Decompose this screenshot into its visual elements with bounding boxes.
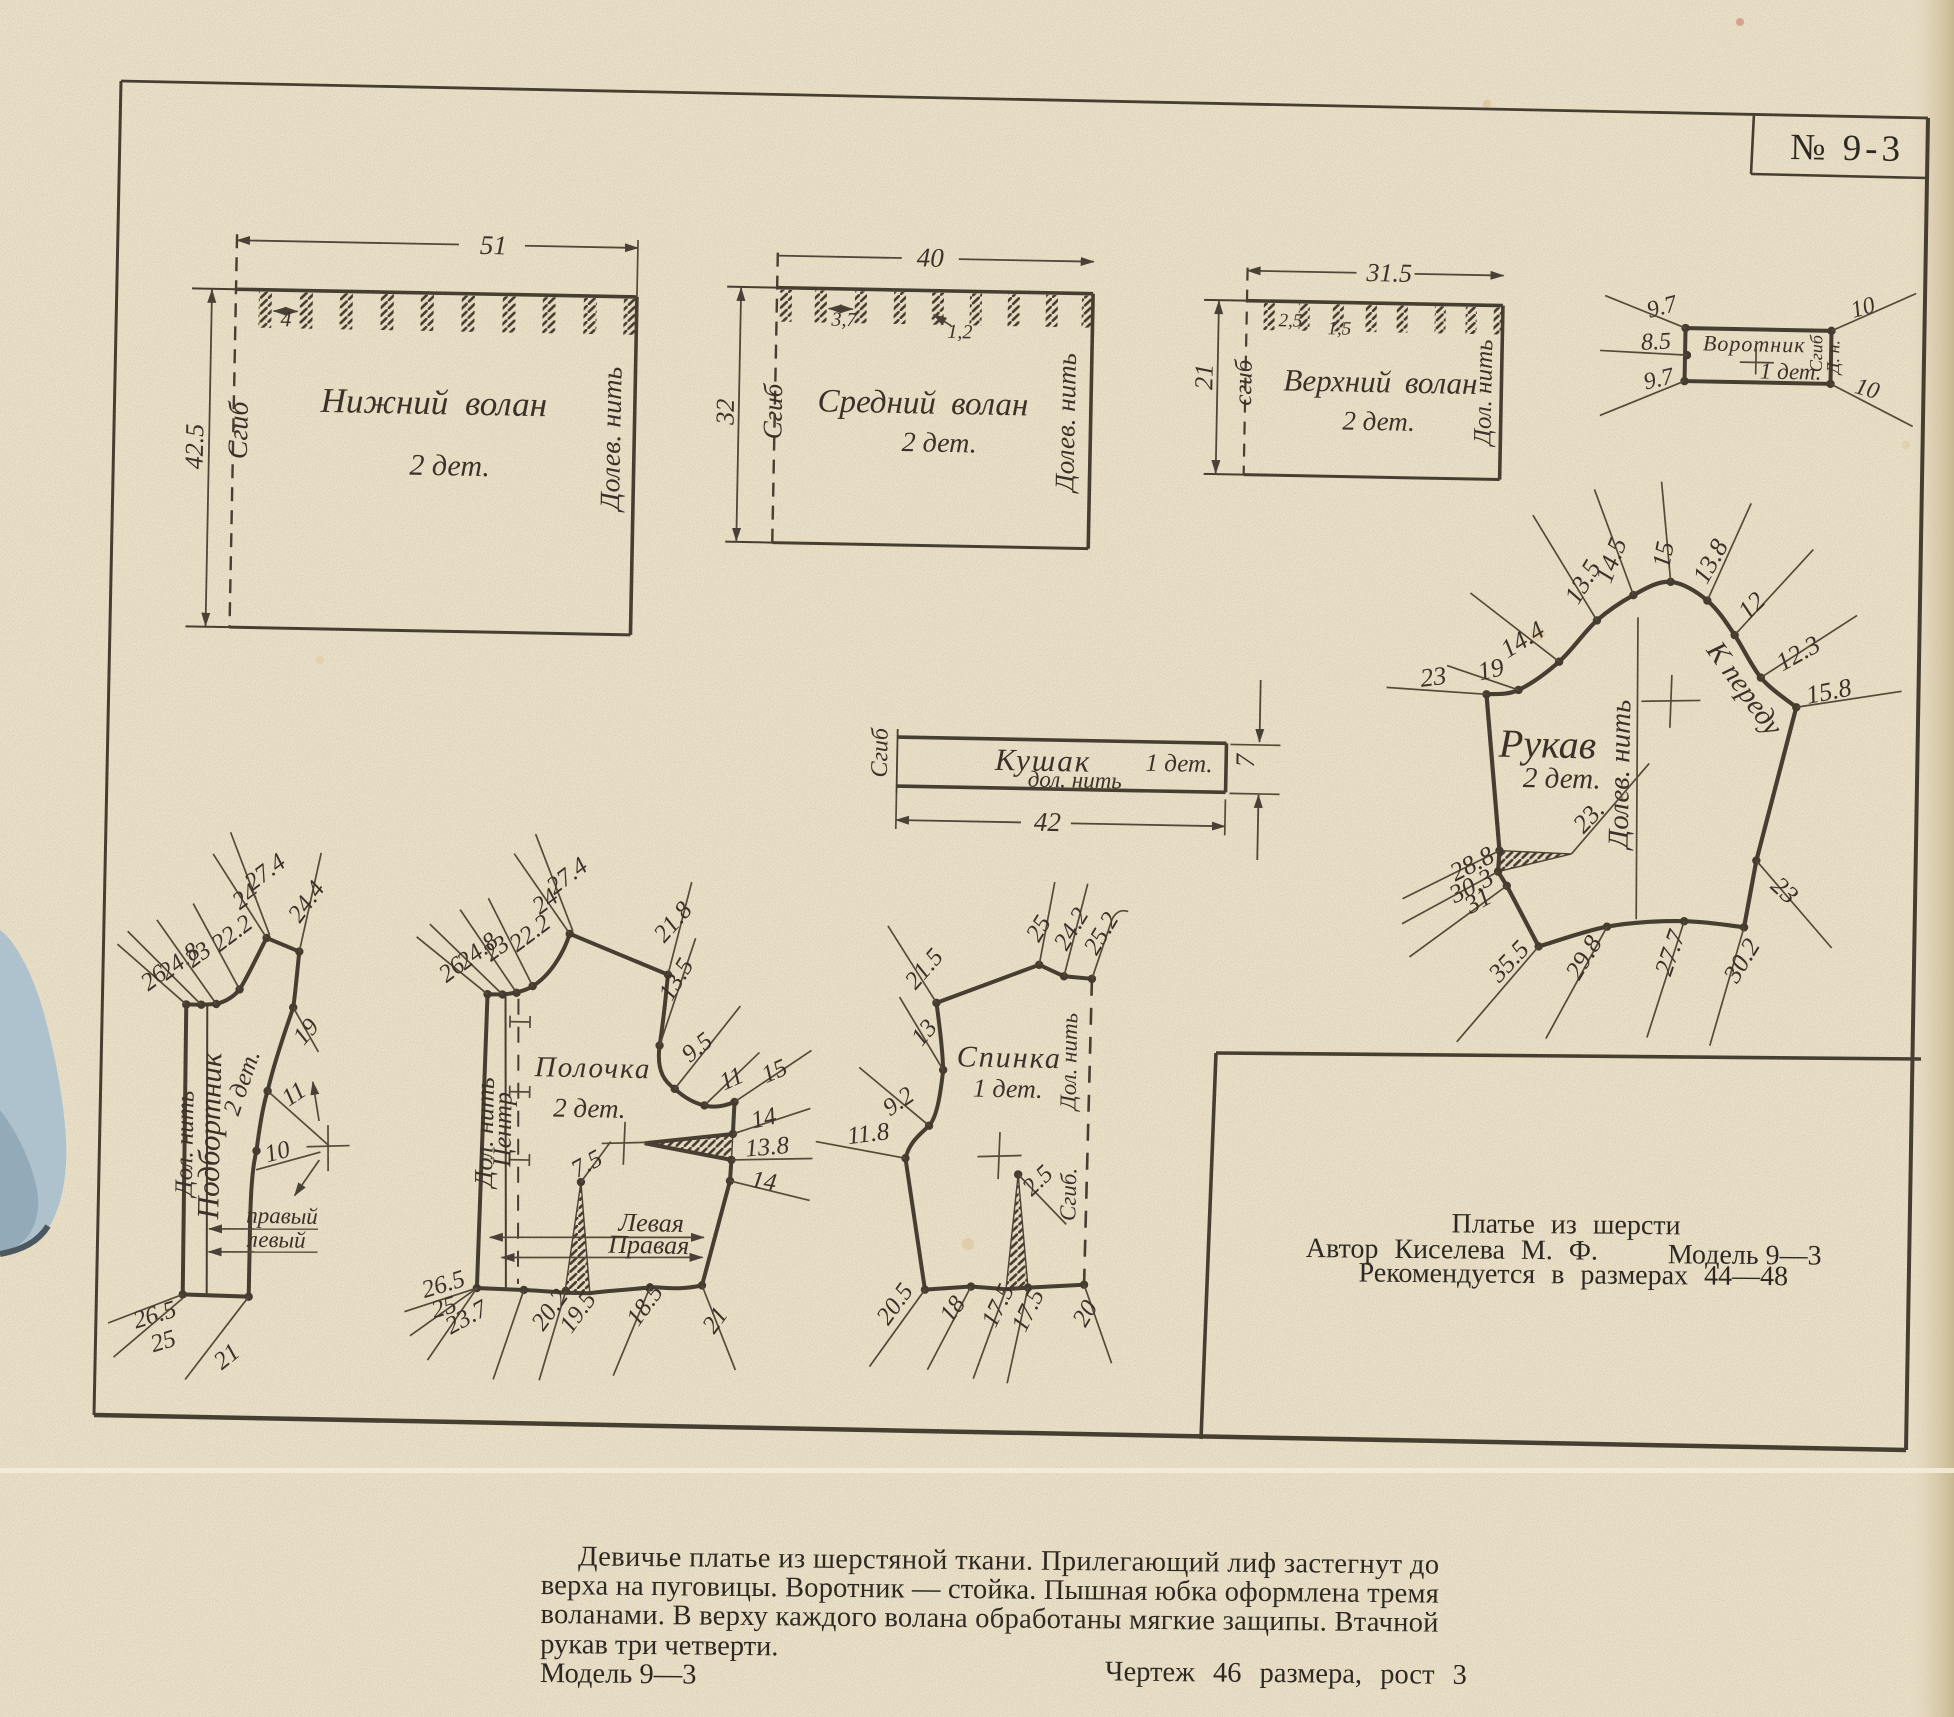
- svg-text:правый: правый: [246, 1203, 319, 1229]
- svg-text:1,5: 1,5: [1327, 318, 1351, 339]
- svg-text:40: 40: [916, 242, 944, 273]
- svg-text:11.8: 11.8: [846, 1118, 891, 1150]
- svg-text:2 дет.: 2 дет.: [553, 1092, 626, 1123]
- svg-text:№ 9-3: № 9-3: [1790, 127, 1905, 170]
- svg-text:Рукав: Рукав: [1497, 721, 1596, 768]
- svg-text:8.5: 8.5: [1640, 328, 1671, 355]
- svg-text:Дол. нить: Дол. нить: [1055, 1013, 1082, 1113]
- svg-text:Долев. нить: Долев. нить: [595, 366, 629, 513]
- svg-text:Долев. нить: Долев. нить: [1602, 699, 1637, 851]
- svg-text:2 дет.: 2 дет.: [901, 427, 977, 459]
- svg-text:Долев. нить: Долев. нить: [1049, 353, 1082, 495]
- svg-text:21: 21: [1189, 364, 1218, 391]
- svg-text:Подбортник: Подбортник: [190, 1052, 228, 1221]
- svg-text:2,5: 2,5: [1278, 310, 1302, 331]
- svg-text:1 дет.: 1 дет.: [973, 1074, 1043, 1104]
- svg-text:Нижний волан: Нижний волан: [319, 381, 547, 424]
- svg-text:Рекомендуется в размерах 44—48: Рекомендуется в размерах 44—48: [1359, 1258, 1789, 1293]
- svg-text:42: 42: [1034, 807, 1062, 838]
- svg-text:2 дет.: 2 дет.: [409, 449, 490, 484]
- svg-text:Спинка: Спинка: [957, 1040, 1063, 1075]
- svg-text:левый: левый: [246, 1227, 307, 1253]
- svg-text:42.5: 42.5: [180, 423, 210, 469]
- svg-text:Сгиб.: Сгиб.: [1055, 1168, 1081, 1222]
- svg-text:Сгиб: Сгиб: [223, 400, 255, 459]
- svg-text:Правая: Правая: [607, 1230, 690, 1261]
- svg-text:Дол. нить: Дол. нить: [1469, 339, 1498, 447]
- svg-text:7: 7: [1230, 752, 1260, 768]
- svg-text:2 дет.: 2 дет.: [1342, 406, 1415, 437]
- svg-text:дол. нить: дол. нить: [1027, 767, 1122, 794]
- svg-text:Д. н.: Д. н.: [1823, 340, 1844, 376]
- svg-text:15: 15: [1646, 539, 1679, 570]
- svg-text:Сгиб: Сгиб: [867, 727, 894, 778]
- svg-text:Полочка: Полочка: [534, 1051, 652, 1085]
- svg-text:14: 14: [749, 1166, 778, 1197]
- svg-text:23: 23: [1419, 661, 1448, 693]
- svg-text:1,2: 1,2: [947, 321, 972, 343]
- svg-text:Чертеж 46 размера, рост 3: Чертеж 46 размера, рост 3: [1105, 1656, 1467, 1690]
- svg-text:3,7: 3,7: [830, 309, 857, 332]
- svg-text:31.5: 31.5: [1365, 258, 1412, 288]
- svg-text:сгиб: сгиб: [1230, 358, 1258, 406]
- svg-text:Воротник: Воротник: [1703, 330, 1806, 357]
- svg-text:Центр: Центр: [487, 1092, 517, 1169]
- svg-text:Сгиб: Сгиб: [757, 382, 788, 440]
- svg-text:2 дет.: 2 дет.: [1523, 762, 1601, 795]
- svg-text:1 дет.: 1 дет.: [1145, 750, 1213, 778]
- svg-text:32: 32: [710, 398, 740, 426]
- svg-text:Средний волан: Средний волан: [817, 383, 1029, 423]
- svg-text:4: 4: [280, 306, 291, 331]
- svg-text:51: 51: [480, 230, 508, 261]
- svg-text:рукав три четверти.: рукав три четверти.: [540, 1629, 779, 1662]
- svg-text:Верхний волан: Верхний волан: [1283, 362, 1478, 401]
- svg-text:Модель 9—3: Модель 9—3: [540, 1658, 697, 1691]
- svg-text:13.8: 13.8: [744, 1132, 790, 1163]
